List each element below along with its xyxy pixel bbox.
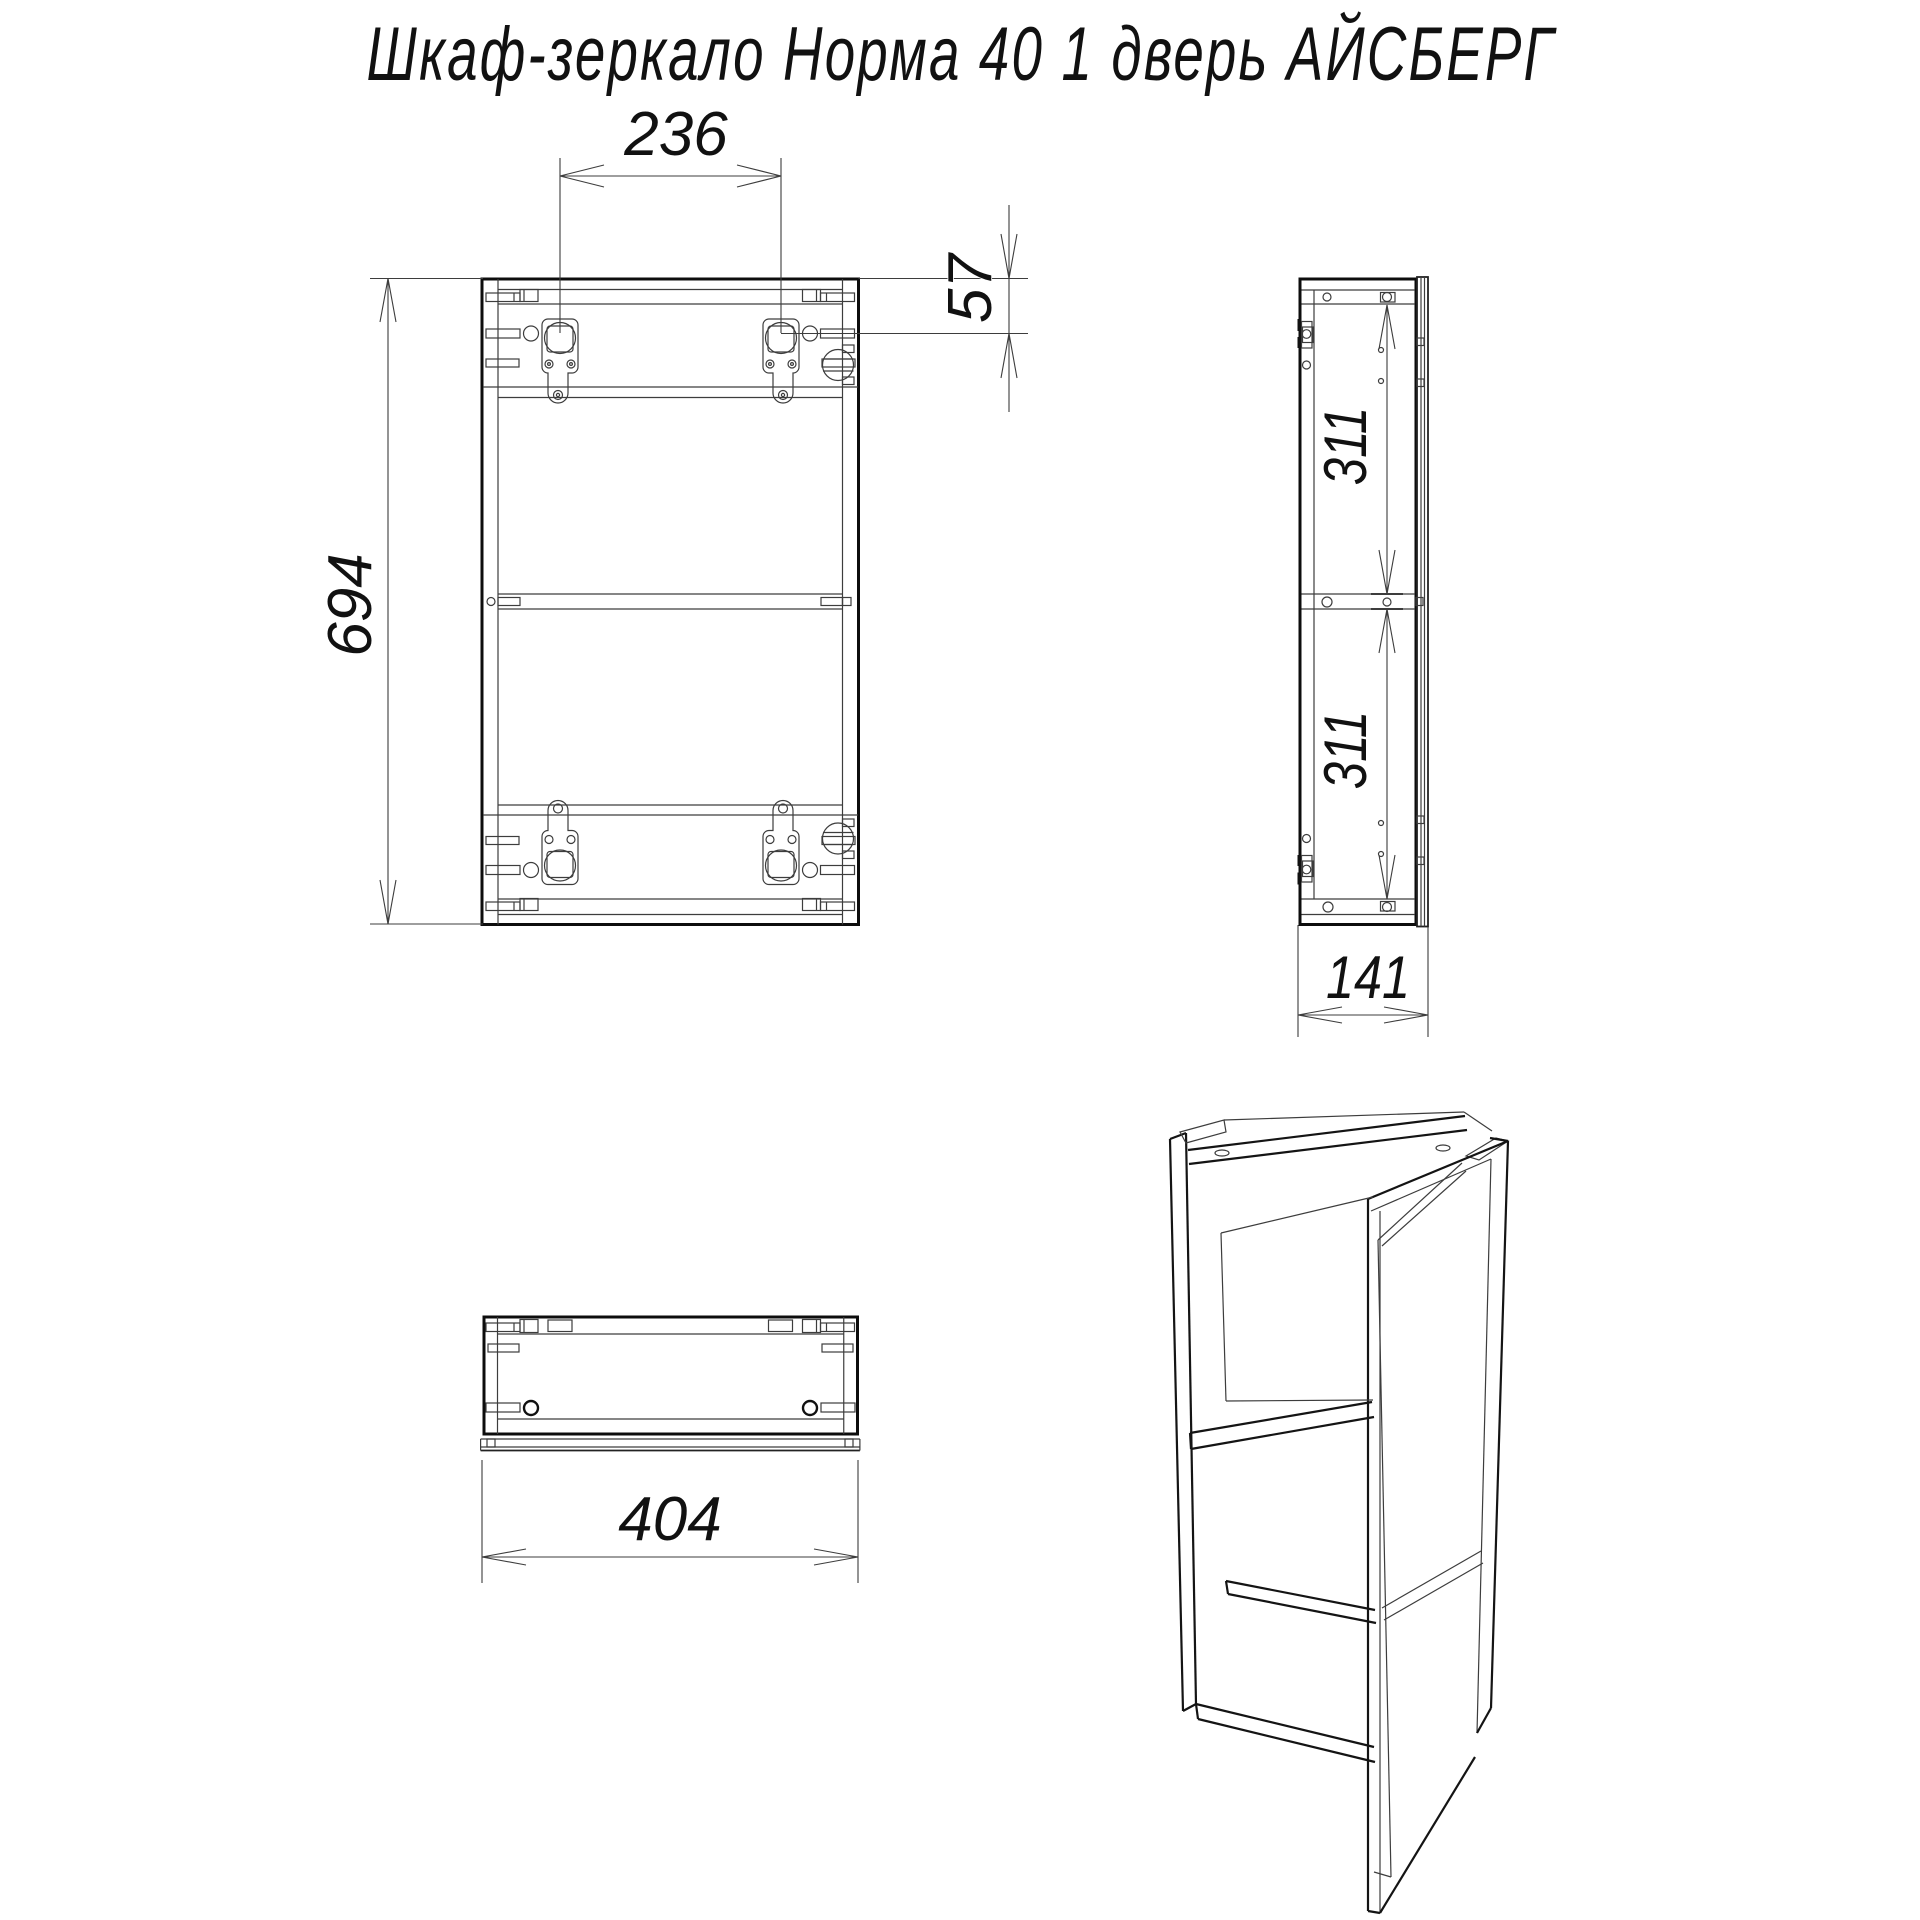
svg-text:311: 311 bbox=[1311, 711, 1379, 789]
svg-text:57: 57 bbox=[936, 252, 1005, 323]
svg-text:236: 236 bbox=[623, 100, 728, 169]
svg-text:311: 311 bbox=[1311, 407, 1379, 485]
svg-text:141: 141 bbox=[1326, 944, 1410, 1011]
svg-text:694: 694 bbox=[316, 553, 385, 656]
svg-text:404: 404 bbox=[618, 1485, 721, 1554]
svg-text:Шкаф-зеркало Норма 40 1 дверь: Шкаф-зеркало Норма 40 1 дверь АЙСБЕРГ bbox=[367, 10, 1558, 97]
